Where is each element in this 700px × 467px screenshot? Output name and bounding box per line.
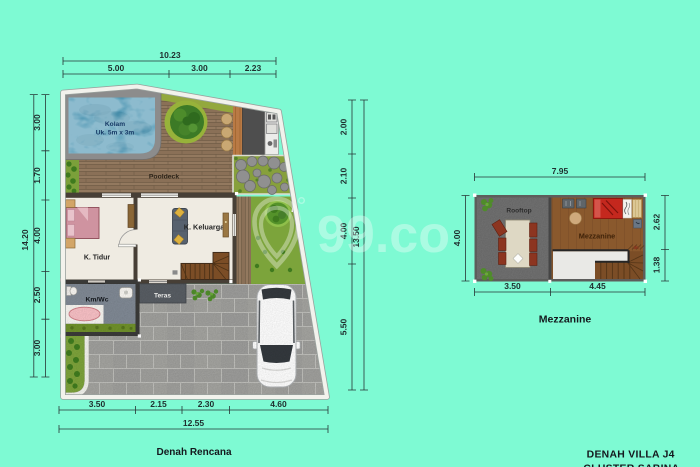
- svg-text:2.62: 2.62: [652, 213, 662, 230]
- svg-text:4.45: 4.45: [589, 281, 606, 291]
- svg-text:10.23: 10.23: [159, 50, 181, 60]
- svg-text:12.55: 12.55: [183, 418, 205, 428]
- svg-text:99.co: 99.co: [317, 206, 450, 264]
- svg-text:CLUSTER SABINA: CLUSTER SABINA: [583, 464, 679, 467]
- svg-text:1.70: 1.70: [32, 167, 42, 184]
- svg-text:4.60: 4.60: [270, 399, 287, 409]
- svg-text:3.00: 3.00: [32, 339, 42, 356]
- svg-text:2.00: 2.00: [339, 118, 349, 135]
- svg-text:2.30: 2.30: [198, 399, 215, 409]
- svg-text:2.10: 2.10: [339, 167, 349, 184]
- svg-text:Mezzanine: Mezzanine: [539, 314, 592, 326]
- svg-text:7.95: 7.95: [552, 166, 569, 176]
- svg-text:14.20: 14.20: [20, 229, 30, 251]
- svg-text:2.15: 2.15: [150, 399, 167, 409]
- svg-text:5.00: 5.00: [108, 63, 125, 73]
- svg-text:K. Keluarga: K. Keluarga: [184, 223, 225, 232]
- svg-text:Rooftop: Rooftop: [506, 208, 531, 215]
- svg-text:4.00: 4.00: [452, 229, 462, 246]
- svg-text:2.23: 2.23: [245, 63, 262, 73]
- svg-text:2.50: 2.50: [32, 286, 42, 303]
- svg-text:3.50: 3.50: [504, 281, 521, 291]
- svg-text:Pooldeck: Pooldeck: [149, 174, 179, 181]
- svg-text:Uk. 5m x 3m: Uk. 5m x 3m: [96, 130, 135, 137]
- svg-text:4.00: 4.00: [32, 227, 42, 244]
- svg-text:K. Tidur: K. Tidur: [84, 255, 111, 262]
- svg-text:1.38: 1.38: [652, 256, 662, 273]
- svg-text:Kolam: Kolam: [105, 121, 125, 128]
- svg-text:Denah Rencana: Denah Rencana: [156, 447, 231, 458]
- svg-text:3.00: 3.00: [32, 114, 42, 131]
- svg-text:5.50: 5.50: [339, 318, 349, 335]
- svg-text:Mezzanine: Mezzanine: [579, 232, 616, 241]
- svg-text:dn: dn: [633, 245, 639, 250]
- svg-text:3.00: 3.00: [191, 63, 208, 73]
- svg-text:3.50: 3.50: [89, 399, 106, 409]
- svg-text:DENAH VILLA J4: DENAH VILLA J4: [587, 450, 675, 461]
